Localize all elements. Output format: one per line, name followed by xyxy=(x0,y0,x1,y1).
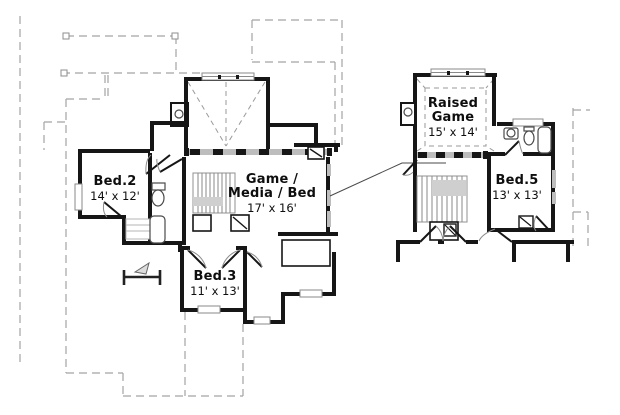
north-marker-icon xyxy=(124,263,160,285)
room-dims: 11' x 13' xyxy=(190,285,240,298)
room-name: Bed.5 xyxy=(492,174,542,188)
room-name-line2: Game xyxy=(428,111,478,125)
room-name: Bed.2 xyxy=(90,175,140,189)
room-label-bed5: Bed.5 13' x 13' xyxy=(492,174,542,202)
room-dims: 17' x 16' xyxy=(228,202,316,215)
room-label-bed2: Bed.2 14' x 12' xyxy=(90,175,140,203)
stairs-right-icon xyxy=(417,176,467,240)
room-name-line2: Media / Bed xyxy=(228,187,316,201)
room-dims: 15' x 14' xyxy=(428,126,478,139)
room-name-line1: Raised xyxy=(428,97,478,111)
room-label-game-media-bed: Game / Media / Bed 17' x 16' xyxy=(228,173,316,215)
room-dims: 13' x 13' xyxy=(492,189,542,202)
roof-corner-markers xyxy=(61,33,178,76)
floor-plan-page: Bed.2 14' x 12' Game / Media / Bed 17' x… xyxy=(0,0,620,415)
room-label-bed3: Bed.3 11' x 13' xyxy=(190,270,240,298)
room-label-raised-game: Raised Game 15' x 14' xyxy=(428,97,478,139)
right-plan xyxy=(396,69,590,262)
room-dims: 14' x 12' xyxy=(90,190,140,203)
vaulted-ceiling-dash-icon xyxy=(188,82,265,146)
roof-outline-right-icon xyxy=(573,108,590,247)
closet-bed5-icon xyxy=(519,216,533,228)
column-niche-right xyxy=(401,103,415,125)
room-name: Bed.3 xyxy=(190,270,240,284)
bathroom-fixtures-left-icons xyxy=(150,110,183,243)
room-name-line1: Game / xyxy=(228,173,316,187)
railing-right-icon xyxy=(413,151,488,159)
